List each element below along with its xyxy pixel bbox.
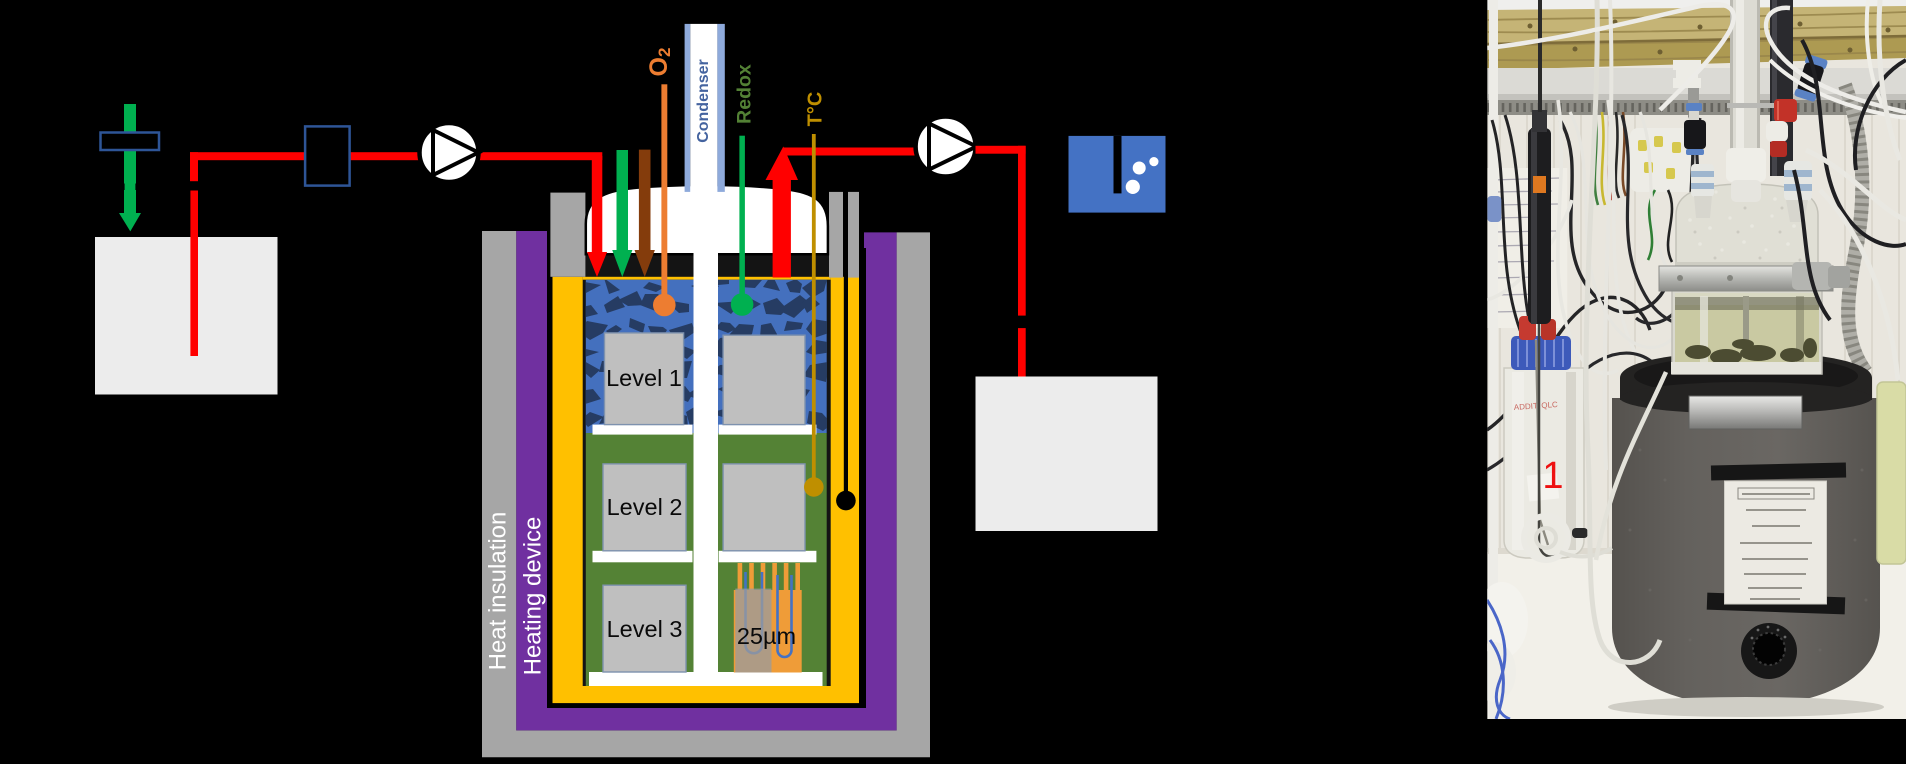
svg-text:Heating device: Heating device (520, 517, 547, 676)
svg-text:Condenser: Condenser (695, 59, 712, 143)
svg-text:25µm: 25µm (737, 623, 796, 649)
svg-text:Level 2: Level 2 (607, 494, 683, 520)
svg-text:Heat insulation: Heat insulation (485, 512, 512, 671)
svg-text:1: 1 (1542, 455, 1563, 497)
svg-text:Level 1: Level 1 (606, 365, 682, 391)
svg-text:T°C: T°C (805, 92, 827, 127)
svg-text:Redox: Redox (734, 64, 756, 124)
svg-text:Level 3: Level 3 (607, 616, 683, 642)
